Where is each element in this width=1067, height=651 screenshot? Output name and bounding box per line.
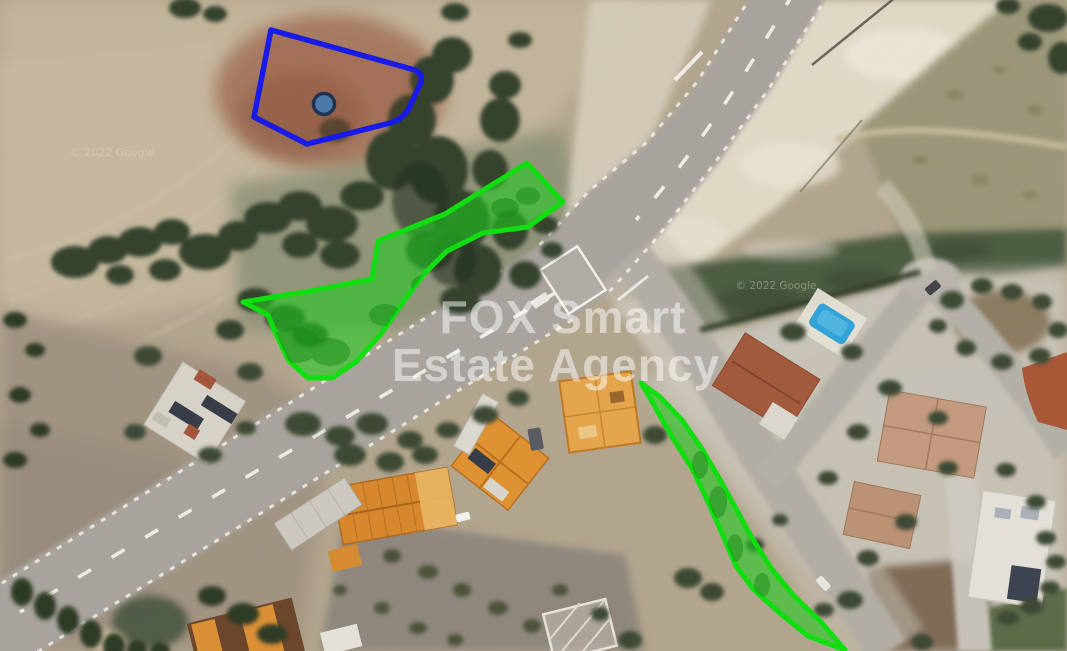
copyright-right: © 2022 Google <box>736 280 817 292</box>
copyright-left: © 2022 Google <box>70 146 155 159</box>
watermark-line1: FOX Smart <box>440 291 687 343</box>
watermark: FOX Smart Estate Agency <box>392 291 720 391</box>
watermark-line2: Estate Agency <box>392 339 720 391</box>
satellite-map[interactable]: © 2022 Google © 2022 Google FOX Smart Es… <box>0 0 1067 651</box>
map-canvas[interactable]: © 2022 Google © 2022 Google FOX Smart Es… <box>0 0 1067 651</box>
